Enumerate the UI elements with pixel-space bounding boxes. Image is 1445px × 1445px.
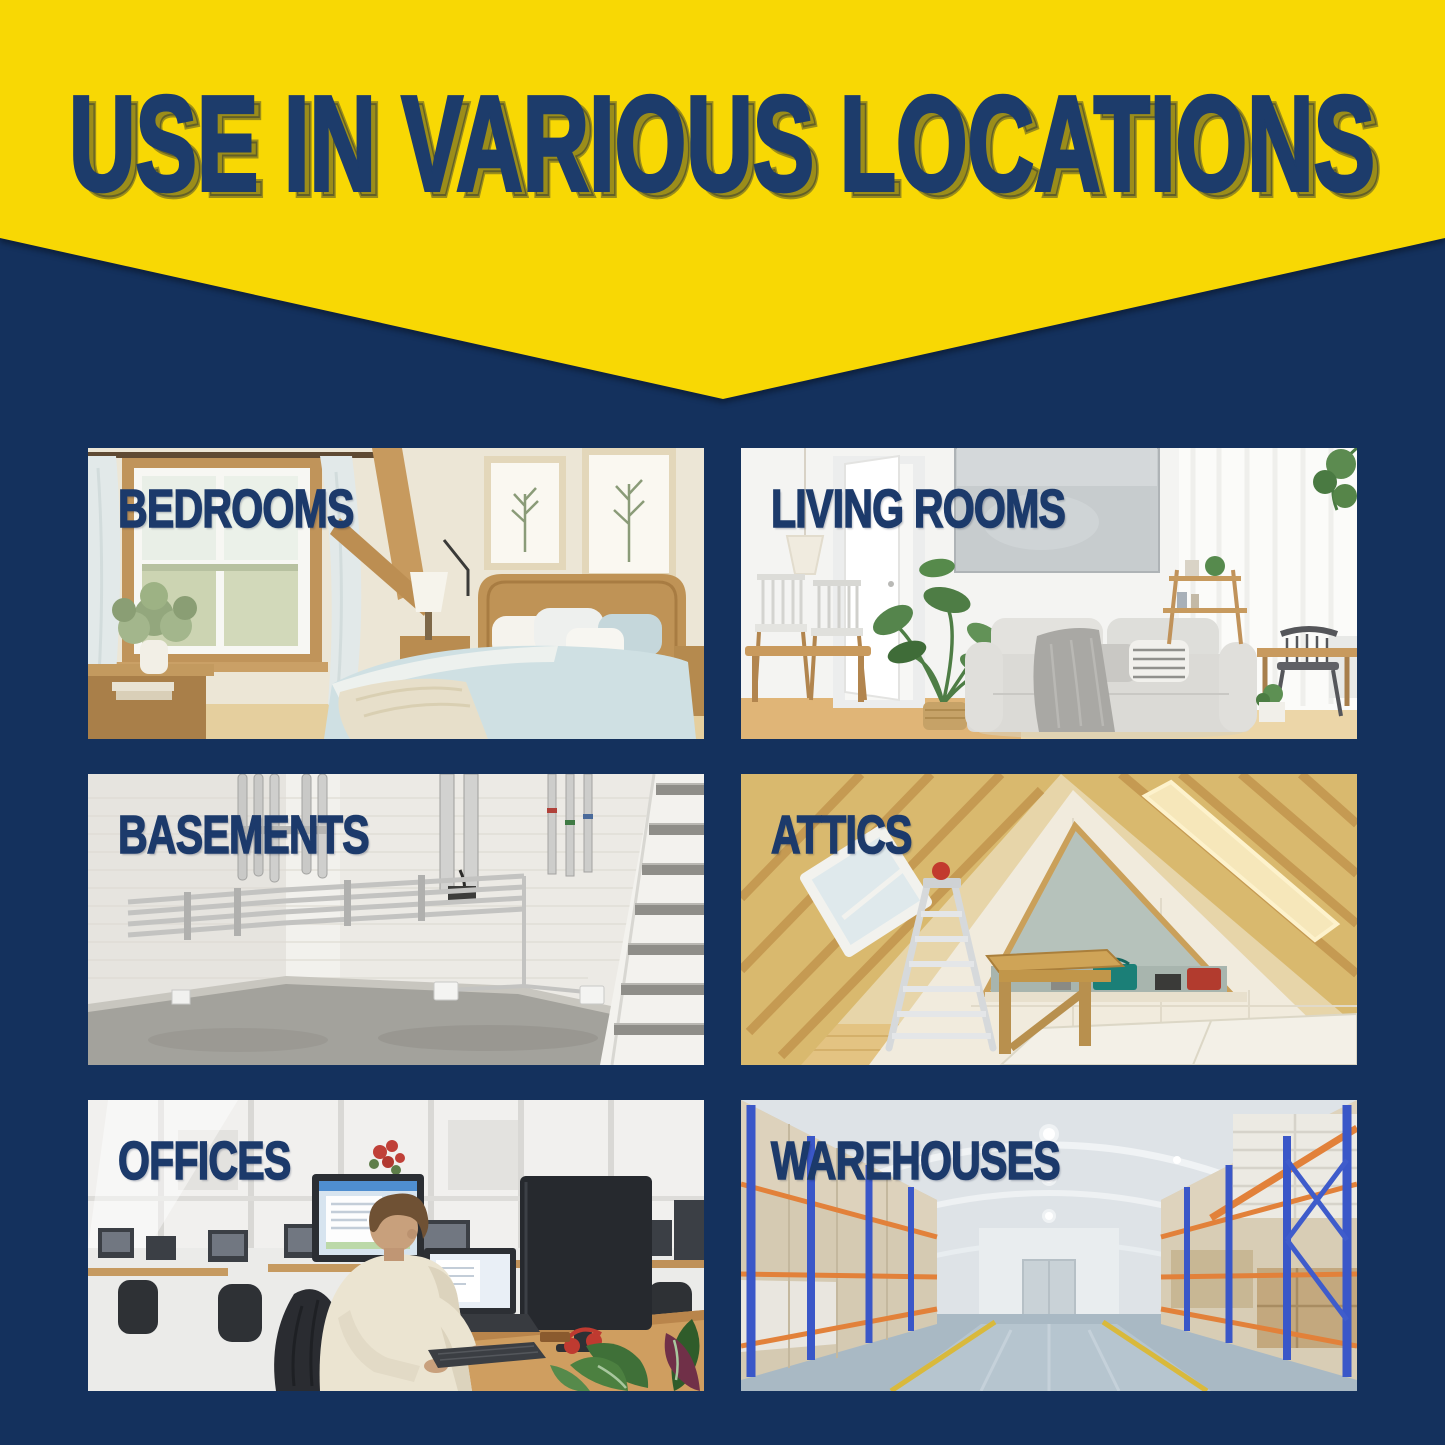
page-title-svg: USE IN VARIOUS LOCATIONS USE IN VARIOUS … [62, 72, 1382, 222]
tile-living-rooms: LIVING ROOMS [741, 448, 1357, 739]
tile-label-living-rooms: LIVING ROOMS [771, 482, 1065, 536]
tile-label-attics: ATTICS [771, 808, 912, 862]
power-tool [1187, 968, 1221, 990]
tile-label-text: WAREHOUSES [771, 1131, 1060, 1191]
tile-warehouses: WAREHOUSES [741, 1100, 1357, 1391]
red-helmet [932, 862, 950, 880]
tile-attics: ATTICS [741, 774, 1357, 1065]
sofa [965, 618, 1257, 739]
tile-label-offices: OFFICES [118, 1134, 291, 1188]
tile-label-text: ATTICS [771, 805, 912, 865]
tile-label-basements: BASEMENTS [118, 808, 369, 862]
tile-offices: OFFICES [88, 1100, 704, 1391]
tile-label-text: OFFICES [118, 1131, 291, 1191]
large-monitor [520, 1176, 652, 1352]
tile-label-bedrooms: BEDROOMS [118, 482, 354, 536]
wall-socket [580, 986, 604, 1004]
header-banner: USE IN VARIOUS LOCATIONS USE IN VARIOUS … [0, 0, 1445, 420]
infographic-root: USE IN VARIOUS LOCATIONS USE IN VARIOUS … [0, 0, 1445, 1445]
tile-label-text: LIVING ROOMS [771, 479, 1065, 539]
tile-label-text: BASEMENTS [118, 805, 369, 865]
tile-basements: BASEMENTS [88, 774, 704, 1065]
wall-socket [172, 990, 190, 1004]
tiles-grid: BEDROOMS [88, 448, 1357, 1391]
wall-socket [434, 982, 458, 1000]
tile-bedrooms: BEDROOMS [88, 448, 704, 739]
page-title: USE IN VARIOUS LOCATIONS [69, 72, 1375, 219]
tile-label-text: BEDROOMS [118, 479, 354, 539]
tile-label-warehouses: WAREHOUSES [771, 1134, 1060, 1188]
